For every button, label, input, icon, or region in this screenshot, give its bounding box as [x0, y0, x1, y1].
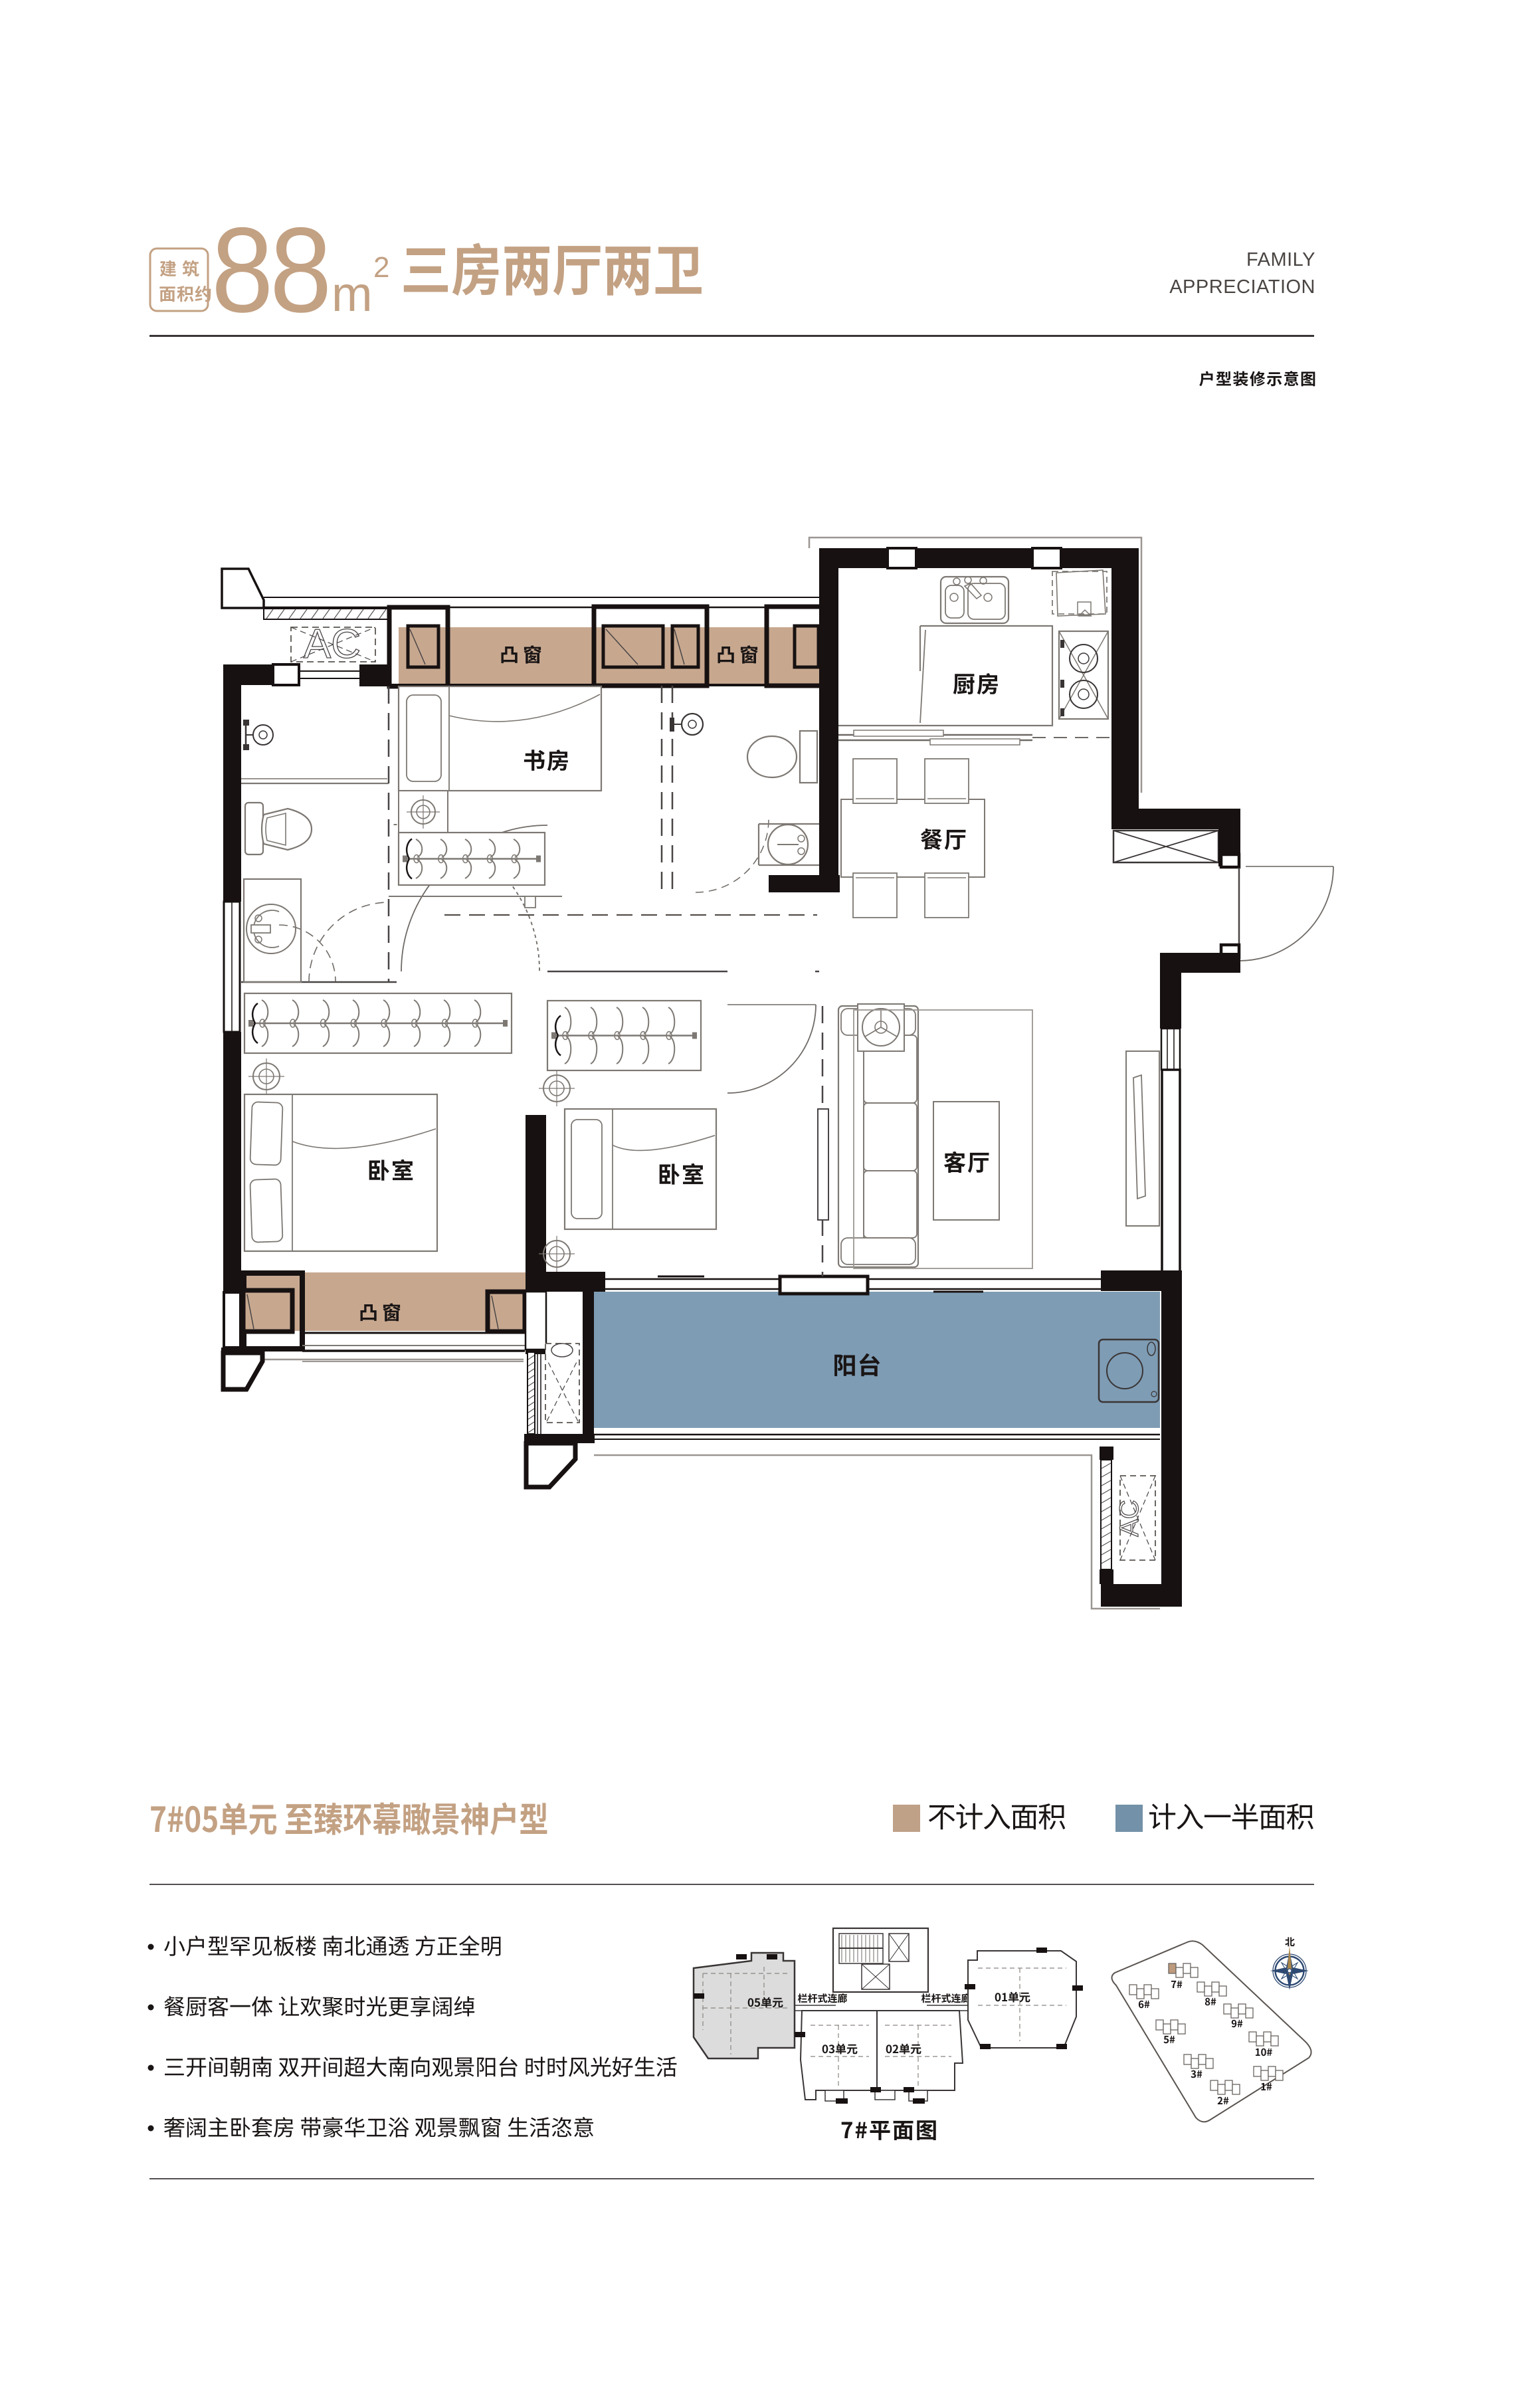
svg-text:FAMILY: FAMILY	[1246, 249, 1315, 270]
svg-text:APPRECIATION: APPRECIATION	[1169, 276, 1315, 298]
svg-text:2: 2	[373, 251, 389, 284]
svg-text:m: m	[332, 266, 373, 322]
svg-text:AC: AC	[304, 621, 361, 667]
svg-text:88: 88	[211, 202, 328, 338]
svg-text:AC: AC	[1115, 1500, 1144, 1537]
